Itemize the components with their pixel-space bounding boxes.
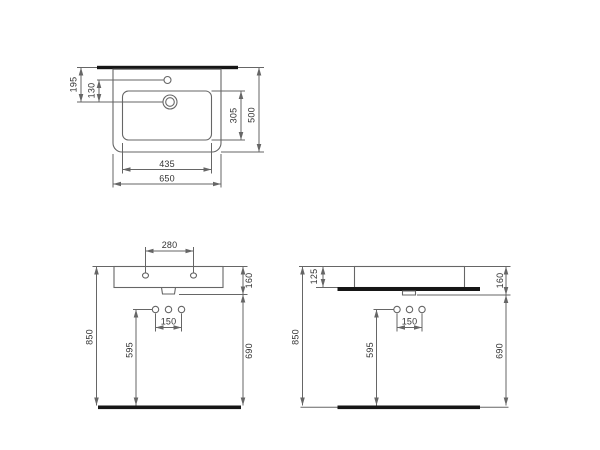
dim-label-130: 130	[87, 83, 97, 99]
dim-label-160-front: 160	[244, 273, 254, 289]
wall-hole-3	[419, 306, 425, 312]
basin-body-front	[114, 267, 223, 288]
dim-label-435: 435	[159, 159, 175, 169]
dim-label-280: 280	[162, 240, 178, 250]
top-view: 195 130 500 305 435 650	[69, 66, 265, 188]
dim-label-650: 650	[159, 174, 175, 184]
wall-hole-2	[165, 306, 171, 312]
drain-hole-inner	[166, 98, 175, 107]
technical-drawing-sheet: 195 130 500 305 435 650	[0, 0, 600, 450]
dim-label-850-side: 850	[291, 329, 301, 345]
dim-label-690-front: 690	[244, 343, 254, 359]
wall-hole-1	[152, 306, 158, 312]
drain-outlet-side	[403, 291, 416, 295]
wall-hole-2	[406, 306, 412, 312]
dim-label-500: 500	[247, 107, 257, 123]
front-view: 280 160 150 595 850 690	[85, 240, 255, 409]
floor-line-front	[98, 406, 241, 410]
dim-label-150-front: 150	[161, 317, 177, 327]
dim-label-195: 195	[69, 77, 79, 93]
dim-label-150-side: 150	[402, 317, 418, 327]
wall-hole-1	[394, 306, 400, 312]
side-view: 125 160 150 595 850 690	[291, 267, 511, 410]
fixing-hole-right	[191, 273, 197, 278]
dim-label-160-side: 160	[495, 273, 505, 289]
wall-hole-3	[178, 306, 184, 312]
drain-outlet-front	[162, 288, 176, 295]
floor-line-side	[338, 406, 481, 410]
dim-label-125: 125	[309, 269, 319, 285]
dim-label-305: 305	[229, 108, 239, 124]
dim-label-850-front: 850	[85, 329, 95, 345]
basin-body-side	[355, 267, 465, 288]
drain-hole-outer	[163, 95, 177, 109]
dim-label-595-front: 595	[125, 342, 135, 358]
underside-rim-side	[338, 287, 481, 291]
dim-label-595-side: 595	[365, 342, 375, 358]
tap-hole	[164, 77, 171, 84]
washbasin-dimension-drawing: 195 130 500 305 435 650	[0, 0, 600, 450]
dim-label-690-side: 690	[495, 343, 505, 359]
fixing-hole-left	[143, 273, 149, 278]
